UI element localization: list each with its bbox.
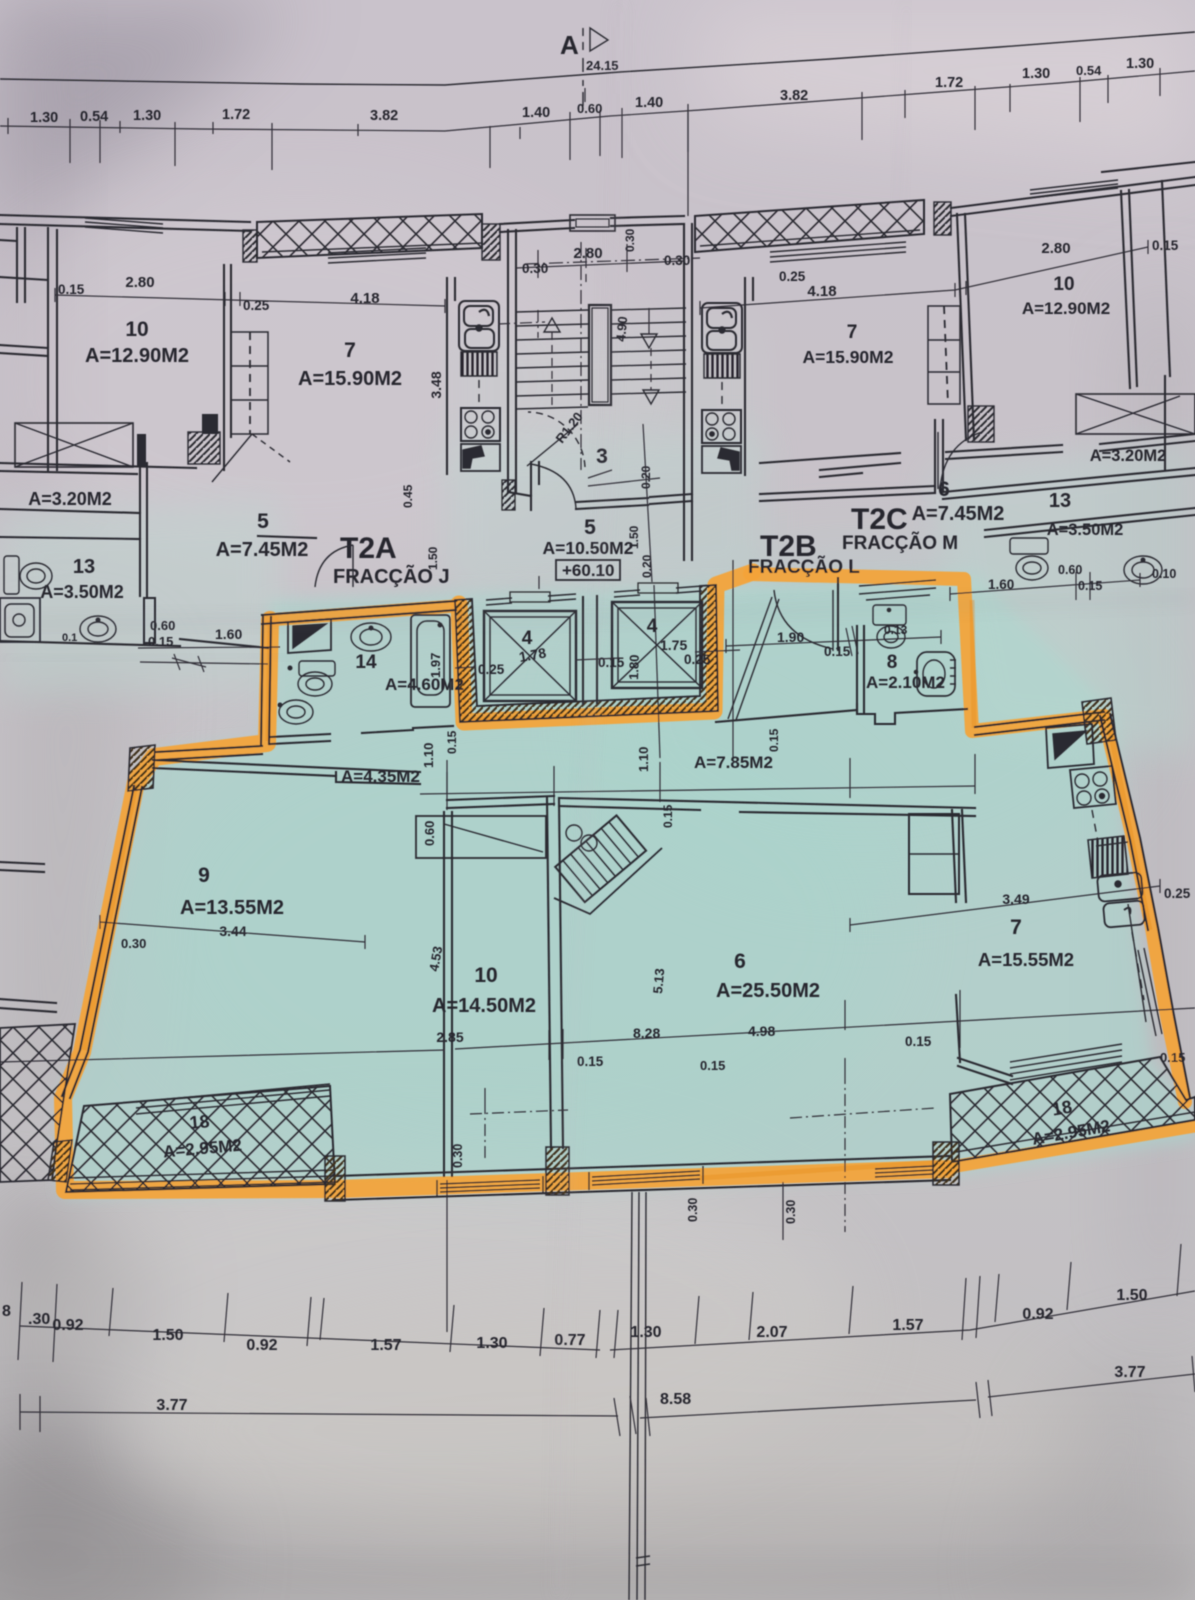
svg-text:A=7.45M2: A=7.45M2 bbox=[912, 503, 1005, 525]
svg-text:0.13: 0.13 bbox=[884, 623, 908, 637]
svg-text:4.18: 4.18 bbox=[807, 283, 836, 300]
svg-text:0.1: 0.1 bbox=[62, 632, 77, 644]
svg-text:2.80: 2.80 bbox=[1041, 240, 1070, 257]
svg-text:3.82: 3.82 bbox=[780, 88, 808, 104]
svg-text:1.57: 1.57 bbox=[370, 1337, 401, 1354]
svg-text:1.30: 1.30 bbox=[30, 110, 58, 126]
svg-text:8: 8 bbox=[2, 1303, 11, 1320]
svg-text:5.13: 5.13 bbox=[650, 968, 667, 995]
svg-text:7: 7 bbox=[344, 339, 356, 362]
svg-text:0.25: 0.25 bbox=[243, 298, 270, 313]
svg-text:2.85: 2.85 bbox=[436, 1029, 463, 1045]
svg-text:1.40: 1.40 bbox=[522, 105, 550, 121]
svg-text:A=4.60M2: A=4.60M2 bbox=[385, 675, 464, 694]
svg-text:1.30: 1.30 bbox=[1126, 56, 1154, 72]
svg-text:10: 10 bbox=[474, 964, 497, 987]
svg-text:1.60: 1.60 bbox=[988, 577, 1014, 592]
svg-text:8: 8 bbox=[887, 652, 898, 673]
svg-text:A=4.35M2: A=4.35M2 bbox=[341, 767, 420, 786]
svg-text:3.77: 3.77 bbox=[156, 1397, 187, 1414]
svg-text:18: 18 bbox=[1050, 1097, 1073, 1120]
svg-text:A=3.20M2: A=3.20M2 bbox=[1090, 447, 1167, 465]
svg-text:2.07: 2.07 bbox=[756, 1324, 787, 1341]
svg-text:0.15: 0.15 bbox=[577, 1054, 604, 1069]
svg-text:0.30: 0.30 bbox=[451, 1144, 465, 1168]
svg-text:A=13.55M2: A=13.55M2 bbox=[180, 897, 284, 919]
svg-text:1.72: 1.72 bbox=[935, 75, 963, 91]
svg-text:1.60: 1.60 bbox=[215, 626, 242, 642]
svg-text:4.90: 4.90 bbox=[613, 316, 630, 343]
svg-text:1.40: 1.40 bbox=[635, 95, 663, 111]
svg-text:0.30: 0.30 bbox=[664, 253, 690, 268]
svg-text:0.15: 0.15 bbox=[905, 1034, 932, 1049]
svg-text:1.75: 1.75 bbox=[660, 637, 687, 653]
svg-text:1.72: 1.72 bbox=[222, 107, 250, 123]
svg-text:0.15: 0.15 bbox=[661, 804, 675, 828]
svg-text:0.15: 0.15 bbox=[700, 1058, 725, 1073]
svg-text:0.92: 0.92 bbox=[1022, 1306, 1053, 1323]
svg-text:A=15.90M2: A=15.90M2 bbox=[298, 368, 402, 390]
svg-text:0.15: 0.15 bbox=[598, 655, 625, 670]
svg-text:1.50: 1.50 bbox=[1116, 1287, 1147, 1304]
svg-text:A=7.85M2: A=7.85M2 bbox=[694, 753, 773, 772]
svg-text:0.15: 0.15 bbox=[58, 282, 85, 297]
svg-text:1.97: 1.97 bbox=[428, 653, 443, 678]
svg-text:24.15: 24.15 bbox=[586, 58, 619, 73]
svg-text:A=15.55M2: A=15.55M2 bbox=[978, 949, 1074, 970]
svg-text:2.80: 2.80 bbox=[573, 245, 602, 262]
svg-text:1.10: 1.10 bbox=[421, 743, 436, 768]
svg-text:0.92: 0.92 bbox=[246, 1337, 277, 1354]
svg-text:1.30: 1.30 bbox=[133, 108, 161, 124]
svg-text:3.82: 3.82 bbox=[370, 108, 398, 124]
svg-text:1.50: 1.50 bbox=[426, 546, 440, 570]
svg-text:0.54: 0.54 bbox=[80, 109, 108, 125]
svg-text:4.18: 4.18 bbox=[350, 290, 379, 307]
svg-text:7: 7 bbox=[1010, 916, 1022, 939]
svg-text:T2C: T2C bbox=[851, 503, 908, 536]
svg-text:0.15: 0.15 bbox=[824, 644, 851, 659]
svg-text:+60.10: +60.10 bbox=[562, 561, 614, 580]
svg-text:.30: .30 bbox=[28, 1311, 50, 1328]
svg-text:13: 13 bbox=[1049, 490, 1071, 512]
svg-text:1.90: 1.90 bbox=[777, 629, 804, 645]
svg-text:A=15.90M2: A=15.90M2 bbox=[803, 347, 894, 367]
svg-text:0.15: 0.15 bbox=[1078, 579, 1102, 593]
svg-text:0.15: 0.15 bbox=[767, 728, 781, 752]
svg-text:0.60: 0.60 bbox=[577, 101, 602, 116]
svg-text:10: 10 bbox=[1053, 274, 1074, 295]
svg-text:A=3.50M2: A=3.50M2 bbox=[1047, 521, 1124, 539]
svg-text:0.15: 0.15 bbox=[1160, 1050, 1185, 1065]
svg-text:1.10: 1.10 bbox=[636, 747, 651, 772]
svg-text:6: 6 bbox=[734, 950, 746, 973]
svg-text:0.10: 0.10 bbox=[1152, 567, 1176, 581]
svg-text:0.45: 0.45 bbox=[401, 484, 415, 508]
svg-text:2.80: 2.80 bbox=[125, 274, 154, 291]
svg-text:1.50: 1.50 bbox=[152, 1327, 183, 1344]
svg-text:0.54: 0.54 bbox=[1076, 63, 1102, 78]
svg-text:0.25: 0.25 bbox=[684, 652, 711, 667]
svg-text:5: 5 bbox=[584, 516, 596, 539]
svg-text:A=12.90M2: A=12.90M2 bbox=[1022, 299, 1110, 318]
svg-text:0.25: 0.25 bbox=[1164, 886, 1191, 901]
svg-text:0.60: 0.60 bbox=[422, 821, 437, 846]
svg-text:A=12.90M2: A=12.90M2 bbox=[85, 345, 189, 367]
svg-text:8.58: 8.58 bbox=[660, 1391, 691, 1408]
svg-text:A=10.50M2: A=10.50M2 bbox=[543, 538, 634, 558]
svg-text:5: 5 bbox=[257, 510, 269, 533]
svg-text:FRACÇÃO L: FRACÇÃO L bbox=[748, 556, 860, 578]
svg-text:0.30: 0.30 bbox=[686, 1198, 700, 1222]
svg-text:4: 4 bbox=[647, 616, 658, 637]
svg-text:3.48: 3.48 bbox=[428, 371, 444, 398]
svg-text:1.30: 1.30 bbox=[630, 1324, 661, 1341]
svg-text:A=7.45M2: A=7.45M2 bbox=[216, 539, 309, 561]
svg-text:0.30: 0.30 bbox=[121, 936, 146, 951]
svg-text:A=25.50M2: A=25.50M2 bbox=[716, 980, 820, 1002]
svg-text:18: 18 bbox=[189, 1111, 211, 1133]
svg-text:3.49: 3.49 bbox=[1002, 891, 1029, 907]
svg-text:1.57: 1.57 bbox=[892, 1317, 923, 1334]
svg-text:0.15: 0.15 bbox=[445, 730, 459, 754]
svg-text:0.25: 0.25 bbox=[779, 269, 806, 284]
svg-text:1.30: 1.30 bbox=[1022, 66, 1050, 82]
svg-text:A=2.10M2: A=2.10M2 bbox=[866, 673, 945, 692]
svg-text:10: 10 bbox=[125, 318, 148, 341]
svg-text:0.15: 0.15 bbox=[148, 634, 173, 649]
svg-text:13: 13 bbox=[73, 556, 95, 578]
svg-text:3.77: 3.77 bbox=[1114, 1364, 1145, 1381]
svg-text:4.98: 4.98 bbox=[748, 1023, 775, 1039]
svg-text:A: A bbox=[560, 30, 579, 60]
svg-text:A=14.50M2: A=14.50M2 bbox=[432, 995, 536, 1017]
svg-text:0.92: 0.92 bbox=[52, 1317, 83, 1334]
svg-text:1.50: 1.50 bbox=[627, 525, 641, 549]
svg-text:0.60: 0.60 bbox=[150, 618, 175, 633]
svg-text:9: 9 bbox=[198, 864, 210, 887]
svg-text:0.25: 0.25 bbox=[478, 662, 505, 677]
svg-text:A=3.50M2: A=3.50M2 bbox=[40, 582, 124, 602]
svg-text:1.80: 1.80 bbox=[626, 654, 642, 680]
svg-text:14: 14 bbox=[355, 652, 377, 673]
svg-text:A=3.20M2: A=3.20M2 bbox=[28, 489, 112, 509]
svg-text:FRACÇÃO M: FRACÇÃO M bbox=[842, 532, 958, 554]
svg-text:0.60: 0.60 bbox=[1058, 563, 1082, 577]
svg-text:0.30: 0.30 bbox=[623, 228, 637, 252]
svg-text:7: 7 bbox=[847, 322, 858, 343]
svg-text:1.30: 1.30 bbox=[476, 1335, 507, 1352]
svg-text:0.30: 0.30 bbox=[784, 1200, 798, 1224]
svg-text:T2A: T2A bbox=[340, 532, 397, 565]
